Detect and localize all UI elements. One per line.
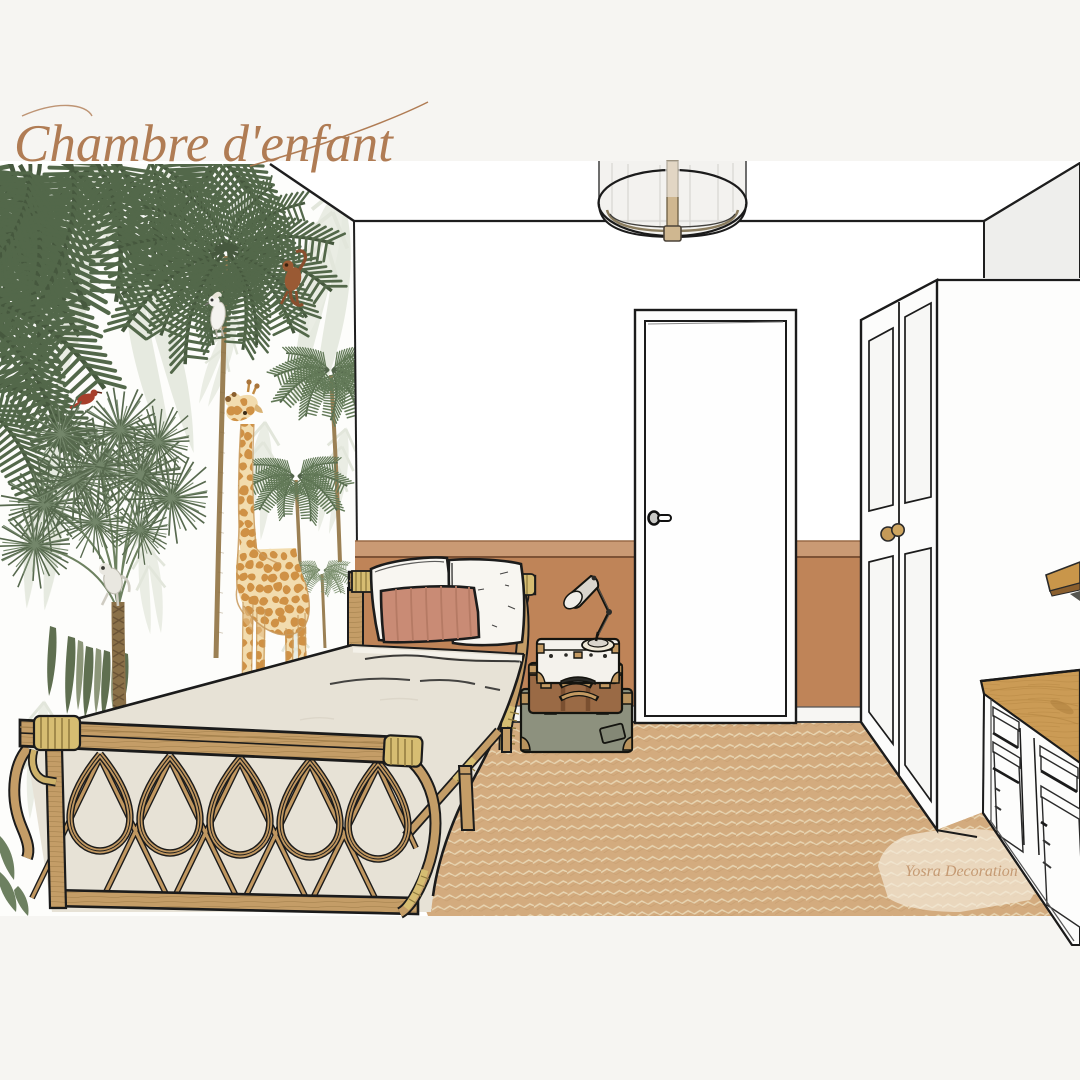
svg-text:Yosra Decoration: Yosra Decoration xyxy=(905,863,1018,880)
svg-text:Chambre d'enfant: Chambre d'enfant xyxy=(14,115,394,173)
